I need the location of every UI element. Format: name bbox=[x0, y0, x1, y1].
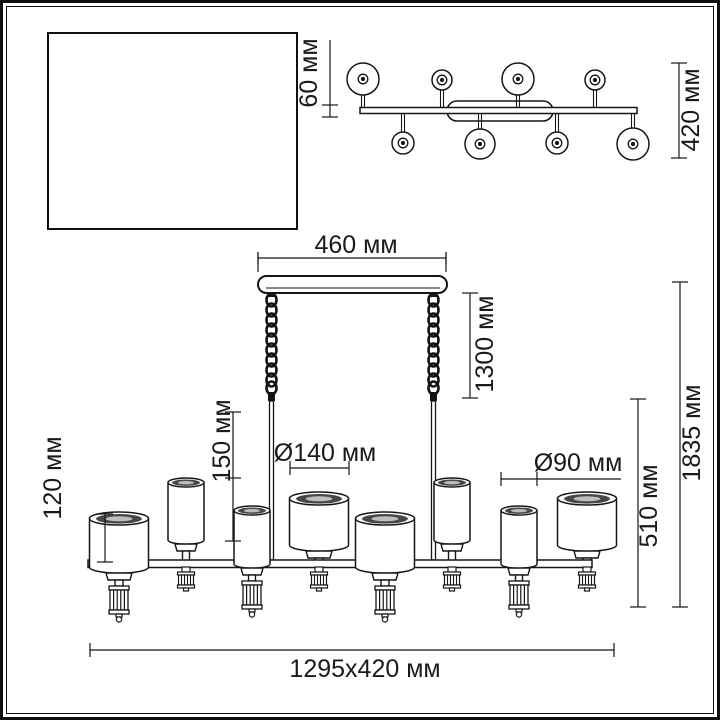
chain-rod-connector-right bbox=[430, 392, 437, 401]
suspension-chain-left bbox=[267, 294, 277, 395]
large-shade-height-label: 120 мм bbox=[39, 436, 67, 519]
chain-rod-connector-left bbox=[268, 392, 275, 401]
finial-large-2 bbox=[242, 581, 262, 617]
top-view-bar bbox=[360, 108, 637, 114]
finial-small-1 bbox=[178, 567, 195, 591]
top-view-depth-label: 420 мм bbox=[677, 68, 705, 151]
shade-small-back-2 bbox=[434, 478, 470, 561]
front-view-drawing: 460 мм 1300 мм 150 мм 120 мм Ø140 мм Ø90… bbox=[39, 231, 706, 683]
top-view-offset-dimension bbox=[322, 40, 338, 117]
shade-large-back-2 bbox=[558, 492, 617, 562]
small-shade-height-label: 150 мм bbox=[208, 399, 236, 482]
body-height-label: 510 мм bbox=[635, 464, 663, 547]
shade-small-back-1 bbox=[168, 478, 204, 561]
finial-small-4 bbox=[579, 567, 596, 591]
finial-large-3 bbox=[375, 586, 395, 622]
top-view-offset-label: 60 мм bbox=[295, 38, 323, 107]
ceiling-canopy bbox=[258, 276, 447, 297]
finial-small-3 bbox=[444, 567, 461, 591]
shade-large-front-2 bbox=[356, 512, 415, 586]
small-shade-diameter-label: Ø90 мм bbox=[534, 449, 623, 477]
total-height-label: 1835 мм bbox=[678, 385, 706, 482]
overall-size-label: 1295x420 мм bbox=[289, 655, 440, 683]
shade-small-front-1 bbox=[234, 506, 270, 581]
dimension-drawing-sheet: 360 мм крепежная планка 60 мм 460 мм bbox=[0, 0, 720, 720]
large-shade-diameter-label: Ø140 мм bbox=[274, 439, 376, 467]
finial-small-2 bbox=[311, 567, 328, 591]
top-view-drawing: 60 мм 420 мм bbox=[295, 38, 705, 160]
chain-length-label: 1300 мм bbox=[471, 296, 499, 393]
suspension-chain-right bbox=[429, 294, 439, 395]
shade-large-front-1 bbox=[90, 512, 149, 586]
mounting-plate-inset-panel bbox=[47, 32, 298, 230]
shade-small-front-2 bbox=[501, 506, 537, 581]
finial-large-1 bbox=[109, 586, 129, 622]
shade-large-back-1 bbox=[290, 492, 349, 562]
canopy-width-label: 460 мм bbox=[314, 231, 397, 259]
finial-large-4 bbox=[509, 581, 529, 617]
